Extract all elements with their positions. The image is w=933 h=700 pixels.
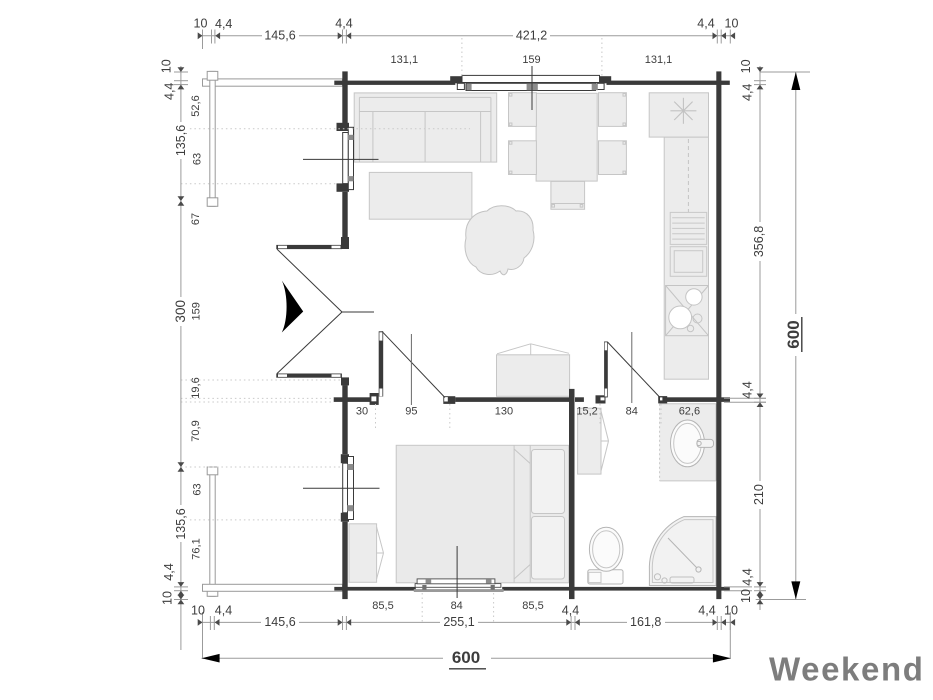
- svg-text:4,4: 4,4: [215, 604, 232, 618]
- svg-text:135,6: 135,6: [174, 508, 188, 539]
- svg-text:19,6: 19,6: [190, 377, 202, 398]
- svg-text:4,4: 4,4: [740, 381, 754, 398]
- svg-text:356,8: 356,8: [752, 226, 766, 257]
- svg-text:4,4: 4,4: [562, 604, 579, 618]
- svg-text:67: 67: [190, 213, 202, 225]
- svg-text:76,1: 76,1: [190, 538, 202, 559]
- svg-text:10: 10: [191, 604, 205, 618]
- svg-text:4,4: 4,4: [698, 604, 715, 618]
- svg-text:4,4: 4,4: [162, 83, 176, 100]
- svg-text:85,5: 85,5: [522, 600, 543, 612]
- svg-text:4,4: 4,4: [697, 17, 714, 31]
- svg-text:10: 10: [739, 59, 753, 73]
- svg-text:4,4: 4,4: [740, 84, 754, 101]
- svg-text:135,6: 135,6: [174, 125, 188, 156]
- svg-text:131,1: 131,1: [645, 54, 673, 66]
- svg-text:10: 10: [160, 591, 174, 605]
- svg-text:4,4: 4,4: [335, 17, 352, 31]
- svg-text:159: 159: [522, 54, 540, 66]
- svg-text:159: 159: [190, 302, 202, 320]
- svg-text:10: 10: [739, 589, 753, 603]
- svg-text:85,5: 85,5: [372, 600, 393, 612]
- svg-text:131,1: 131,1: [391, 54, 419, 66]
- svg-text:62,6: 62,6: [679, 406, 700, 418]
- svg-text:15,2: 15,2: [576, 406, 597, 418]
- svg-text:52,6: 52,6: [190, 95, 202, 116]
- svg-text:130: 130: [495, 406, 513, 418]
- svg-text:70,9: 70,9: [190, 420, 202, 441]
- svg-text:84: 84: [451, 600, 463, 612]
- svg-text:10: 10: [194, 17, 208, 31]
- svg-text:4,4: 4,4: [215, 17, 232, 31]
- svg-text:95: 95: [405, 406, 417, 418]
- svg-text:63: 63: [191, 483, 203, 495]
- svg-text:210: 210: [752, 484, 766, 505]
- svg-text:4,4: 4,4: [740, 568, 754, 585]
- svg-text:600: 600: [784, 320, 803, 348]
- svg-text:300: 300: [173, 300, 188, 323]
- svg-text:421,2: 421,2: [516, 29, 547, 43]
- svg-text:63: 63: [191, 153, 203, 165]
- svg-text:84: 84: [626, 406, 638, 418]
- svg-text:145,6: 145,6: [264, 615, 295, 629]
- svg-text:600: 600: [452, 648, 480, 667]
- svg-text:Weekend: Weekend: [769, 651, 924, 688]
- svg-text:161,8: 161,8: [630, 615, 661, 629]
- svg-text:10: 10: [724, 604, 738, 618]
- svg-text:30: 30: [356, 406, 368, 418]
- svg-text:145,6: 145,6: [264, 29, 295, 43]
- svg-text:4,4: 4,4: [162, 563, 176, 580]
- svg-text:255,1: 255,1: [443, 615, 474, 629]
- svg-text:10: 10: [725, 17, 739, 31]
- svg-text:10: 10: [159, 59, 173, 73]
